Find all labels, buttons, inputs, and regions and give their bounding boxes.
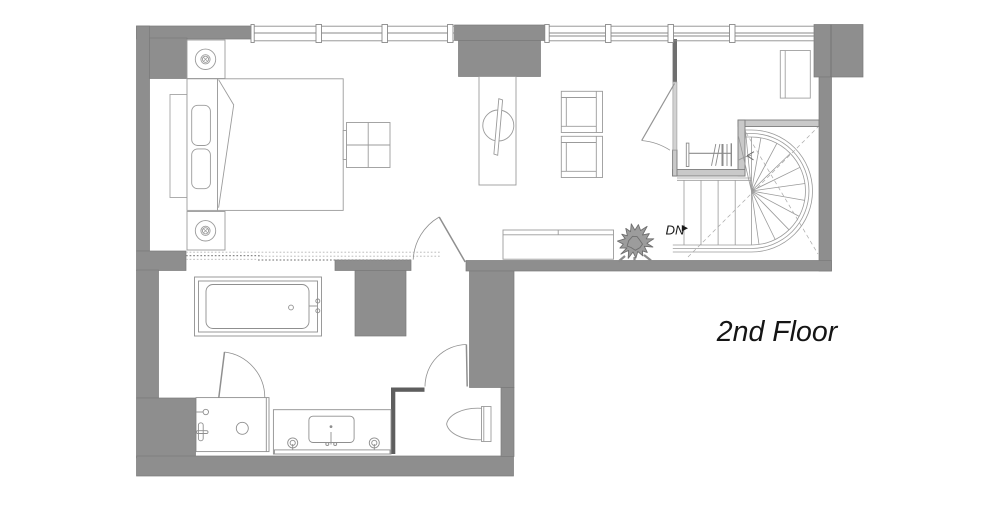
svg-text:2nd Floor: 2nd Floor bbox=[716, 316, 839, 348]
